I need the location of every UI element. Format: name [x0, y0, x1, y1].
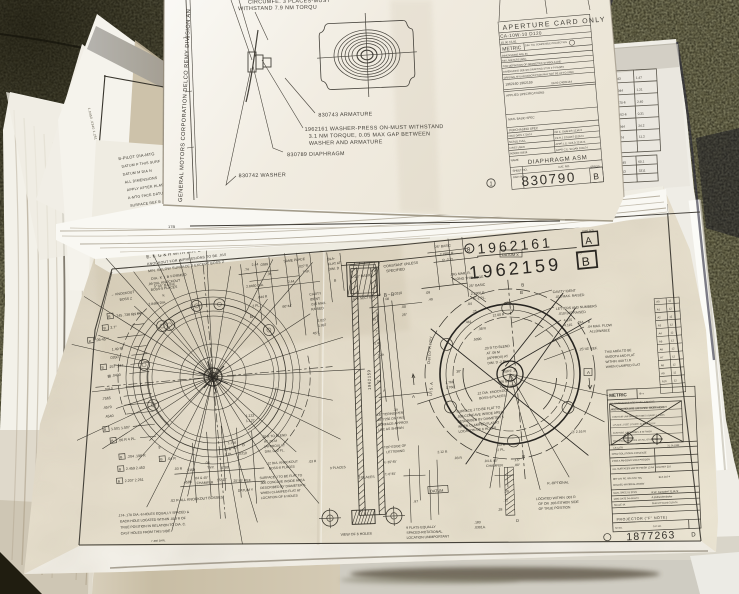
svg-text:CHAMFER: CHAMFER: [196, 481, 213, 486]
svg-text:25°45' REF.: 25°45' REF.: [233, 478, 251, 483]
svg-text:B: B: [250, 314, 253, 319]
svg-text:.97: .97: [413, 499, 418, 503]
svg-text:.09: .09: [376, 293, 381, 297]
svg-text:.5160: .5160: [186, 468, 195, 473]
svg-text:3311: 3311: [639, 169, 646, 173]
svg-text:1.40: 1.40: [374, 341, 381, 346]
svg-text:4.115: 4.115: [564, 323, 573, 328]
svg-text:.15°: .15°: [514, 458, 521, 462]
svg-text:METRIC: METRIC: [609, 392, 627, 398]
svg-text:.08: .08: [384, 297, 389, 301]
svg-text:.03 R: .03 R: [174, 467, 183, 471]
svg-text:31.JA 1962: 31.JA 1962: [667, 444, 680, 448]
svg-text:.09: .09: [504, 489, 509, 493]
svg-text:U.S.A: U.S.A: [428, 381, 434, 396]
svg-text:B: B: [581, 254, 590, 269]
svg-text:.04: .04: [376, 379, 381, 383]
svg-text:MFD: MFD: [576, 251, 582, 256]
svg-text:.04 & 45°: .04 & 45°: [484, 459, 499, 464]
svg-text:B: B: [588, 320, 590, 324]
svg-text:11.2: 11.2: [639, 134, 645, 138]
svg-text:.04 R: .04 R: [167, 456, 176, 461]
svg-text:B: B: [522, 454, 525, 459]
svg-text:.03 R: .03 R: [308, 459, 317, 464]
svg-text:.25: .25: [371, 317, 376, 321]
svg-text:17B: 17B: [168, 224, 175, 229]
svg-text:60.1: 60.1: [638, 160, 645, 164]
svg-text:2.44: 2.44: [288, 279, 295, 284]
svg-text:830789 DIAPHRAGM: 830789 DIAPHRAGM: [287, 151, 345, 158]
svg-text:Ⓣ 6°45': Ⓣ 6°45': [384, 471, 396, 477]
svg-text:830742 WASHER: 830742 WASHER: [239, 172, 287, 179]
svg-text:.461: .461: [465, 320, 472, 325]
svg-text:1.47: 1.47: [636, 76, 643, 80]
svg-text:.183: .183: [474, 520, 481, 524]
svg-text:⊜ ◐: ⊜ ◐: [639, 391, 645, 395]
svg-text:.08: .08: [205, 461, 210, 465]
svg-text:BLA-: BLA-: [327, 257, 335, 262]
svg-text:SCALE 4X: SCALE 4X: [614, 503, 626, 507]
svg-text:A10: A10: [662, 379, 667, 383]
svg-text:2.40: 2.40: [637, 100, 644, 104]
svg-text:Ⓐ 2.16 R: Ⓐ 2.16 R: [571, 428, 586, 434]
svg-text:SH NO.: SH NO.: [615, 527, 623, 529]
svg-text:.04 & 45°: .04 & 45°: [194, 476, 209, 481]
svg-text:.35: .35: [267, 272, 272, 277]
svg-text:.6780: .6780: [220, 465, 229, 470]
svg-text:2.12 R: 2.12 R: [437, 450, 448, 455]
svg-text:.49: .49: [428, 297, 433, 301]
svg-text:.04: .04: [467, 302, 472, 306]
svg-text:0.31: 0.31: [638, 112, 645, 116]
svg-text:TYP.: TYP.: [303, 269, 311, 274]
svg-text:CAT NO.: CAT NO.: [653, 525, 662, 528]
svg-text:TYP.: TYP.: [207, 465, 215, 470]
svg-text:1: 1: [490, 182, 493, 188]
svg-text:7 JRE 3HRL: 7 JRE 3HRL: [151, 538, 166, 543]
svg-text:⌀: ⌀: [88, 339, 90, 343]
svg-text:1.760: 1.760: [228, 446, 237, 451]
svg-text:9: 9: [158, 446, 160, 450]
svg-text:4.125: 4.125: [564, 318, 573, 323]
svg-text:1877263: 1877263: [626, 529, 676, 543]
svg-text:1.21: 1.21: [636, 88, 643, 92]
svg-text:B: B: [520, 290, 523, 295]
svg-text:BLK 216-4: BLK 216-4: [659, 475, 671, 479]
svg-text:A: A: [587, 370, 590, 375]
svg-text:.80°: .80°: [514, 463, 521, 467]
svg-text:.34: .34: [393, 408, 398, 412]
svg-text:A: A: [585, 236, 593, 248]
svg-text:9 PL.: 9 PL.: [225, 452, 233, 457]
svg-text:.0301A.: .0301A.: [474, 525, 486, 529]
svg-text:1.766: 1.766: [228, 441, 237, 446]
svg-text:830743 ARMATURE: 830743 ARMATURE: [318, 111, 372, 118]
svg-text:B: B: [521, 282, 524, 287]
svg-text:3 PLACES: 3 PLACES: [358, 475, 375, 480]
svg-text:LS-127R: LS-127R: [613, 446, 623, 449]
svg-text:.25: .25: [472, 309, 477, 313]
svg-text:.73: .73: [375, 329, 380, 333]
svg-text:.74: .74: [244, 267, 249, 272]
svg-text:2.44: 2.44: [251, 262, 258, 267]
svg-text:NAME: NAME: [510, 158, 519, 163]
svg-text:.08: .08: [401, 305, 406, 309]
svg-text:15°12': 15°12': [217, 478, 227, 483]
svg-text:.03 R: .03 R: [454, 456, 463, 460]
svg-text:.03 R: .03 R: [497, 443, 506, 447]
svg-text:24.2: 24.2: [638, 124, 645, 128]
svg-text:.09: .09: [425, 290, 430, 294]
svg-text:DIA.: DIA.: [578, 320, 585, 324]
svg-text:2.7°: 2.7°: [110, 325, 117, 330]
svg-text:1.127: 1.127: [246, 418, 255, 423]
svg-text:.0310: .0310: [238, 451, 247, 456]
svg-text:.28: .28: [498, 508, 503, 512]
svg-text:1.2A: 1.2A: [377, 353, 385, 358]
svg-text:45°1: 45°1: [313, 331, 321, 336]
svg-text:A: A: [412, 394, 415, 399]
svg-text:.4580: .4580: [183, 480, 192, 485]
svg-text:1962159: 1962159: [366, 369, 372, 390]
svg-text:1.133: 1.133: [245, 413, 254, 418]
svg-text:D: D: [516, 518, 519, 523]
svg-text:2 PL.: 2 PL.: [497, 448, 505, 452]
svg-text:CHAMFER: CHAMFER: [486, 463, 503, 468]
